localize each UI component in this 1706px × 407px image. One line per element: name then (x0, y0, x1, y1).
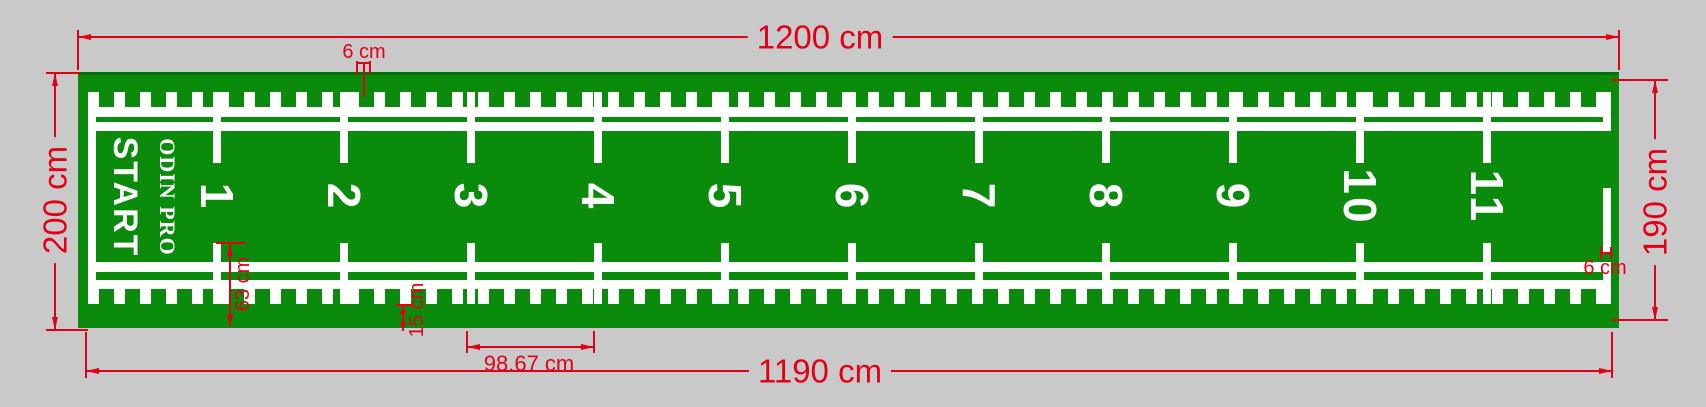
arrowhead-down-icon (52, 317, 58, 330)
arrowhead-down-icon (400, 322, 406, 331)
lane-divider-top (721, 92, 729, 163)
arrowhead-left-icon (86, 368, 99, 374)
finish-bracket-bar (1600, 252, 1612, 254)
lane-divider-bottom (1102, 243, 1110, 304)
lane-divider-top (1229, 92, 1237, 163)
lane-number: 5 (702, 183, 748, 212)
arrowhead-left-icon (467, 344, 480, 350)
dim-right-height: 190 cm (1639, 139, 1672, 265)
dim-top-width: 1200 cm (748, 21, 893, 54)
ext-line-right-top (1612, 79, 1668, 81)
lane-divider-bottom (975, 243, 983, 304)
lane-number: 9 (1210, 183, 1256, 212)
lane-divider-bottom (467, 243, 475, 304)
arrowhead-left-icon (78, 34, 91, 40)
lane-divider-bottom (213, 243, 221, 304)
ext-line-spacing-left (466, 331, 468, 353)
dim-lane-spacing: 98.67 cm (484, 353, 575, 375)
lane-number: 6 (829, 183, 875, 212)
lane-divider-top (213, 92, 221, 163)
lane-number: 11 (1464, 170, 1510, 225)
dim-line-spacing (467, 346, 594, 348)
arrowhead-right-icon (1606, 34, 1619, 40)
arrowhead-right-icon (581, 344, 594, 350)
dim-finish-line-width: 6 cm (1583, 258, 1626, 278)
brand-label: ODIN PRO (156, 138, 178, 255)
lane-number: 10 (1337, 168, 1383, 225)
dim-tick-width: 6 cm (342, 42, 385, 62)
lane-divider-bottom (721, 243, 729, 304)
dim-edge-margin: 15 cm (407, 283, 427, 337)
jump-mat: START ODIN PRO 1234567891011 (78, 72, 1619, 328)
dim-left-height: 200 cm (39, 137, 72, 263)
lane-number: 1 (194, 183, 240, 212)
lane-divider-top (848, 92, 856, 163)
lane-divider-top (1356, 92, 1364, 163)
tick-leader-line (363, 63, 365, 97)
arrowhead-up-icon (1652, 80, 1658, 93)
lane-divider-top (975, 92, 983, 163)
end-cap-line-top (1603, 92, 1611, 131)
dim-bottom-zone: 63 cm (233, 257, 253, 311)
lane-number: 2 (321, 183, 367, 212)
start-label: START (108, 137, 142, 258)
arrowhead-down-icon (227, 314, 233, 327)
lane-number: 8 (1083, 183, 1129, 212)
arrowhead-up-icon (227, 243, 233, 256)
lane-divider-top (1102, 92, 1110, 163)
lane-divider-bottom (848, 243, 856, 304)
lane-divider-bottom (594, 243, 602, 304)
lane-divider-bottom (1229, 243, 1237, 304)
lane-number: 3 (448, 183, 494, 212)
ext-line-right-bottom (1612, 319, 1668, 321)
ext-line-spacing-right (593, 331, 595, 353)
lane-divider-bottom (1483, 243, 1491, 304)
lane-divider-top (1483, 92, 1491, 163)
lane-divider-bottom (340, 243, 348, 304)
lane-divider-top (467, 92, 475, 163)
arrowhead-up-icon (52, 73, 58, 86)
lane-divider-bottom (1356, 243, 1364, 304)
lane-divider-top (340, 92, 348, 163)
arrowhead-down-icon (1652, 307, 1658, 320)
lane-divider-top (594, 92, 602, 163)
finish-line-segment (1603, 188, 1611, 252)
dim-bottom-width: 1190 cm (749, 355, 891, 388)
arrowhead-up-icon (400, 305, 406, 314)
arrowhead-right-icon (1599, 368, 1612, 374)
lane-number: 4 (575, 183, 621, 212)
lane-number: 7 (956, 183, 1002, 212)
start-line (88, 92, 96, 304)
technical-drawing-canvas: START ODIN PRO 1234567891011 1200 cm 119… (0, 0, 1706, 407)
